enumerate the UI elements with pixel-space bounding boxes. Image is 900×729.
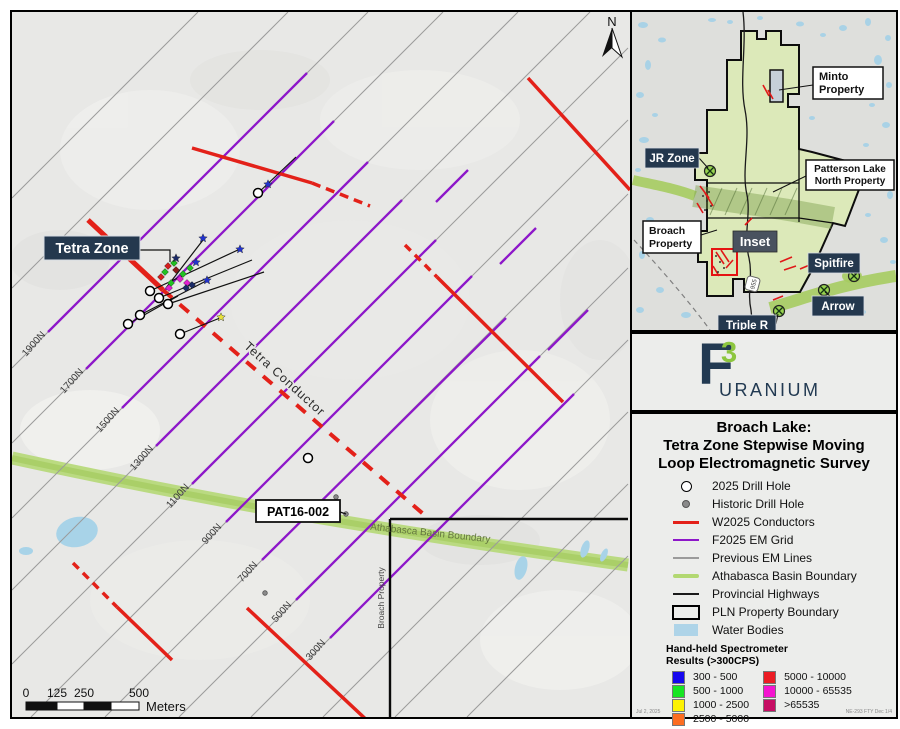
svg-text:JR Zone: JR Zone <box>649 153 694 165</box>
legend-item-athabasca-basin: Athabasca Basin Boundary <box>632 567 896 585</box>
pat16-002-callout: PAT16-002 <box>256 500 346 522</box>
yellow-swatch-icon <box>672 699 685 712</box>
crimson-swatch-icon <box>763 699 776 712</box>
spectro-class-4: 2500 - 5000 <box>672 712 749 726</box>
gray-dot-icon <box>682 500 690 508</box>
legend-item-water-bodies: Water Bodies <box>632 621 896 639</box>
green-line-icon <box>673 574 699 578</box>
black-rect-icon <box>672 605 700 620</box>
svg-text:300N: 300N <box>304 638 328 663</box>
svg-text:Broach: Broach <box>649 225 685 237</box>
spectrometer-classes: 300 - 500 500 - 1000 1000 - 2500 2500 - … <box>672 670 896 726</box>
minto-property-callout: Minto Property <box>813 67 883 99</box>
north-label: N <box>607 14 616 29</box>
map-title-line2: Tetra Zone Stepwise Moving <box>632 437 896 455</box>
north-arrow-icon: N <box>602 14 622 57</box>
map-title: Broach Lake: Tetra Zone Stepwise Moving … <box>632 419 896 473</box>
svg-text:0: 0 <box>23 686 30 700</box>
legend-item-previous-em-lines: Previous EM Lines <box>632 549 896 567</box>
company-logo: F 3 URANIUM <box>630 332 898 412</box>
legend-item-w2025-conductors: W2025 Conductors <box>632 513 896 531</box>
scale-bar: 0 125 250 500 Meters <box>23 686 187 714</box>
broach-property-label: Broach Property <box>376 567 386 629</box>
jr-zone-label: JR Zone <box>645 148 699 168</box>
black-line-icon <box>673 593 699 595</box>
legend-item-pln-property-boundary: PLN Property Boundary <box>632 603 896 621</box>
triple-r-label: Triple R <box>718 315 776 330</box>
jr-zone-deposit-icon <box>705 166 716 177</box>
spectro-class-6: 10000 - 65535 <box>763 684 852 698</box>
svg-text:1900N: 1900N <box>20 330 48 359</box>
legend-item-provincial-highways: Provincial Highways <box>632 585 896 603</box>
orange-swatch-icon <box>672 713 685 726</box>
tetra-zone-callout: Tetra Zone <box>44 236 140 260</box>
purple-line-icon <box>673 539 699 541</box>
svg-text:Property: Property <box>649 238 692 250</box>
inset-map: 955 Minto Property Patterson Lake <box>630 10 898 332</box>
svg-text:Patterson Lake: Patterson Lake <box>814 164 886 175</box>
inset-label: Inset <box>733 231 777 252</box>
spectro-class-7: >65535 <box>763 698 852 712</box>
svg-text:Spitfire: Spitfire <box>814 258 854 270</box>
green-swatch-icon <box>672 685 685 698</box>
main-map-canvas: Broach Property 1900N 1700N 1500N 1300N … <box>12 12 630 717</box>
map-title-line3: Loop Electromagnetic Survey <box>632 455 896 473</box>
svg-text:Triple R: Triple R <box>726 320 769 330</box>
svg-text:North Property: North Property <box>815 176 886 187</box>
gray-line-icon <box>673 557 699 559</box>
blue-swatch-icon <box>672 671 685 684</box>
footnote-date: Jul 2, 2025 <box>636 709 660 715</box>
spectro-class-5: 5000 - 10000 <box>763 670 852 684</box>
spitfire-label: Spitfire <box>808 253 860 273</box>
blue-rect-icon <box>674 624 698 636</box>
red-line-icon <box>673 521 699 524</box>
pat16-002-label: PAT16-002 <box>267 505 329 519</box>
spectro-class-3: 1000 - 2500 <box>672 698 749 712</box>
open-circle-icon <box>681 481 692 492</box>
legend: Broach Lake: Tetra Zone Stepwise Moving … <box>630 412 898 719</box>
legend-item-2025-drill-hole: 2025 Drill Hole <box>632 477 896 495</box>
red-swatch-icon <box>763 671 776 684</box>
inset-map-canvas: 955 Minto Property Patterson Lake <box>632 12 896 330</box>
main-map: Broach Property 1900N 1700N 1500N 1300N … <box>10 10 632 719</box>
spectro-class-1: 300 - 500 <box>672 670 749 684</box>
tetra-zone-label: Tetra Zone <box>55 241 128 257</box>
scale-unit-label: Meters <box>146 699 186 714</box>
logo-3-digit: 3 <box>721 339 737 368</box>
spectrometer-header: Hand-held Spectrometer Results (>300CPS) <box>666 643 896 667</box>
footnote-ref: NE-293 FTY Dec 1/4 <box>846 709 892 715</box>
spectro-class-2: 500 - 1000 <box>672 684 749 698</box>
svg-text:Arrow: Arrow <box>821 301 854 313</box>
map-title-line1: Broach Lake: <box>632 419 896 437</box>
svg-text:Minto: Minto <box>819 71 849 83</box>
svg-text:500: 500 <box>129 686 149 700</box>
svg-text:125: 125 <box>47 686 67 700</box>
legend-items: 2025 Drill Hole Historic Drill Hole W202… <box>632 477 896 639</box>
broach-property-callout: Broach Property <box>643 221 701 253</box>
magenta-swatch-icon <box>763 685 776 698</box>
logo-uranium-text: URANIUM <box>719 381 821 399</box>
legend-item-f2025-em-grid: F2025 EM Grid <box>632 531 896 549</box>
legend-item-historic-drill-hole: Historic Drill Hole <box>632 495 896 513</box>
arrow-label: Arrow <box>812 296 864 316</box>
map-figure: Broach Property 1900N 1700N 1500N 1300N … <box>0 0 900 729</box>
svg-text:250: 250 <box>74 686 94 700</box>
svg-text:Inset: Inset <box>740 234 771 249</box>
patterson-lake-north-callout: Patterson Lake North Property <box>806 160 894 190</box>
svg-text:Property: Property <box>819 84 865 96</box>
